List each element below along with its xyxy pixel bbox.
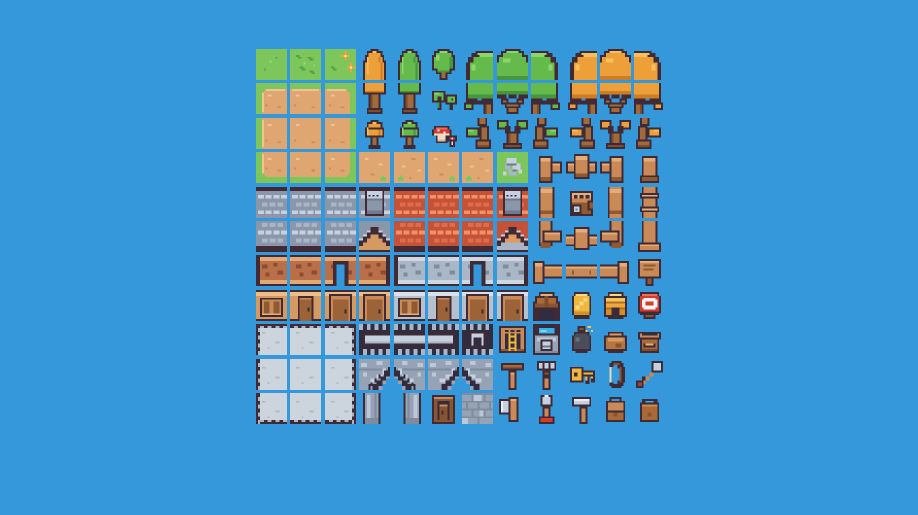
tile-post-top bbox=[634, 152, 665, 183]
tile-wall-gray-right bbox=[497, 255, 528, 286]
tile-fence-bottom-post bbox=[566, 221, 597, 252]
tile-fence-side-left bbox=[531, 187, 562, 218]
license-bar: CC0 1.0 This content is free to use in p… bbox=[0, 445, 918, 515]
tile-bridge-band-right bbox=[428, 324, 459, 355]
tile-window-on-brown bbox=[256, 290, 287, 321]
tile-dirt-tile-b bbox=[394, 152, 425, 183]
tile-sack bbox=[600, 324, 631, 355]
tile-bridge-band-left bbox=[359, 324, 390, 355]
tile-roof-red-bottom bbox=[394, 221, 425, 252]
tile-wall-gray-doorway bbox=[462, 255, 493, 286]
tile-bigtree-orange-root-right bbox=[634, 118, 665, 149]
tile-dirt-bottom-left bbox=[256, 152, 287, 183]
tile-roof-red-top bbox=[462, 187, 493, 218]
tile-bigtree-green-root-mid bbox=[497, 118, 528, 149]
tile-roof-red-bottom bbox=[462, 221, 493, 252]
tile-fence-side-right bbox=[600, 187, 631, 218]
tile-bigtree-green-mid-left bbox=[462, 83, 493, 114]
tile-dirt-tile-a bbox=[428, 152, 459, 183]
tile-target bbox=[634, 290, 665, 321]
tile-wall-brown-doorway bbox=[325, 255, 356, 286]
tile-pine-green-bottom bbox=[394, 83, 425, 114]
tile-crate-chest bbox=[566, 187, 597, 218]
tile-bigtree-orange-mid-right bbox=[634, 83, 665, 114]
tile-bomb bbox=[566, 324, 597, 355]
tile-roof-gray-bottom bbox=[290, 221, 321, 252]
tile-bigtree-orange-root-mid bbox=[600, 118, 631, 149]
tile-dirt-top-left bbox=[256, 83, 287, 114]
tile-roof-gray-top bbox=[290, 187, 321, 218]
tile-ladder-frame bbox=[497, 324, 528, 355]
tile-floor-center bbox=[290, 359, 321, 390]
tile-pillar-right bbox=[394, 393, 425, 424]
tile-bigtree-green-root-right bbox=[531, 118, 562, 149]
tile-dirt-top-right bbox=[325, 83, 356, 114]
tile-bigtree-green-root-left bbox=[462, 118, 493, 149]
tile-door-large-brown bbox=[359, 290, 390, 321]
tile-fence-corner-tr bbox=[600, 152, 631, 183]
tile-key bbox=[566, 359, 597, 390]
tile-dirt-right bbox=[325, 118, 356, 149]
tile-axe bbox=[497, 393, 528, 424]
tile-roof-red-bottom bbox=[428, 221, 459, 252]
tile-floor-bottom bbox=[290, 393, 321, 424]
tile-dirt-top bbox=[290, 83, 321, 114]
tile-dirt-center bbox=[290, 118, 321, 149]
tile-pickaxe bbox=[497, 359, 528, 390]
tile-roof-gray-bottom bbox=[256, 221, 287, 252]
tile-dirt-bottom-right bbox=[325, 152, 356, 183]
tile-bigtree-orange-top-mid bbox=[600, 49, 631, 80]
tile-bigtree-green-top-left bbox=[462, 49, 493, 80]
tile-floor-top-left bbox=[256, 324, 287, 355]
tile-basket bbox=[634, 324, 665, 355]
tile-floor-bottom-right bbox=[325, 393, 356, 424]
tile-arch-deco-left bbox=[359, 359, 390, 390]
tile-grass-sparkle bbox=[325, 49, 356, 80]
tile-roof-gray-bottom bbox=[325, 221, 356, 252]
tile-bigtree-green-mid-right bbox=[531, 83, 562, 114]
tile-bag-closed bbox=[600, 393, 631, 424]
tile-window-on-gray bbox=[394, 290, 425, 321]
tile-wall-brown-right bbox=[359, 255, 390, 286]
tile-wall-brown-left bbox=[256, 255, 287, 286]
tile-post-mid bbox=[634, 187, 665, 218]
tile-chimney-on-gray bbox=[359, 187, 390, 218]
tile-framed-door bbox=[428, 393, 459, 424]
tile-fence-corner-br bbox=[600, 221, 631, 252]
tile-fence-corner-tl bbox=[531, 152, 562, 183]
tile-dirt-bottom bbox=[290, 152, 321, 183]
tile-door-small-brown bbox=[290, 290, 321, 321]
tile-fence-corner-bl bbox=[531, 221, 562, 252]
tile-arch-deco-right bbox=[394, 359, 425, 390]
tile-arrow bbox=[634, 359, 665, 390]
tile-door-small-gray bbox=[428, 290, 459, 321]
tile-roof-red-top bbox=[394, 187, 425, 218]
tile-bigtree-green-mid-mid bbox=[497, 83, 528, 114]
tile-post-bottom bbox=[634, 221, 665, 252]
tile-bigtree-orange-mid-mid bbox=[600, 83, 631, 114]
tile-hfence-mid bbox=[566, 255, 597, 286]
tile-dirt-left bbox=[256, 118, 287, 149]
tile-arch-plain-left bbox=[428, 359, 459, 390]
tile-floor-bottom-left bbox=[256, 393, 287, 424]
tile-pine-green-small bbox=[394, 118, 425, 149]
tile-sign-post bbox=[634, 255, 665, 286]
tile-beehive bbox=[600, 290, 631, 321]
tile-bow bbox=[600, 359, 631, 390]
tile-grass-pebbles bbox=[497, 152, 528, 183]
tile-dirt-tile-a bbox=[359, 152, 390, 183]
tile-coin bbox=[566, 290, 597, 321]
tile-floor-left bbox=[256, 359, 287, 390]
tile-wall-gray-mid bbox=[428, 255, 459, 286]
tile-sapling-curly bbox=[428, 83, 459, 114]
tile-bigtree-orange-top-left bbox=[566, 49, 597, 80]
tile-floor-right bbox=[325, 359, 356, 390]
tile-bigtree-green-top-mid bbox=[497, 49, 528, 80]
tile-pine-orange-small bbox=[359, 118, 390, 149]
tile-floor-top-right bbox=[325, 324, 356, 355]
tile-roof-gray-top bbox=[325, 187, 356, 218]
tile-gable-gray bbox=[359, 221, 390, 252]
tile-brick-wall bbox=[462, 393, 493, 424]
tile-bigtree-orange-root-left bbox=[566, 118, 597, 149]
tile-bridge-window bbox=[462, 324, 493, 355]
asset-pack-preview: CC0 1.0 This content is free to use in p… bbox=[0, 0, 918, 515]
tile-grass-tufts bbox=[290, 49, 321, 80]
tile-shovel bbox=[531, 393, 562, 424]
tile-door-large-brown bbox=[325, 290, 356, 321]
tile-well-bottom bbox=[531, 324, 562, 355]
tile-fence-top-post bbox=[566, 152, 597, 183]
tile-hammer bbox=[566, 393, 597, 424]
tile-arch-plain-right bbox=[462, 359, 493, 390]
tileset-grid bbox=[256, 49, 665, 424]
tile-pine-orange-bottom bbox=[359, 83, 390, 114]
tile-gable-red bbox=[497, 221, 528, 252]
tile-hfence-right bbox=[600, 255, 631, 286]
tile-mushrooms bbox=[428, 118, 459, 149]
tile-wall-gray-left bbox=[394, 255, 425, 286]
tile-well-top bbox=[531, 290, 562, 321]
tile-dirt-tile-b bbox=[462, 152, 493, 183]
tile-pine-green-top bbox=[394, 49, 425, 80]
tile-pine-orange-top bbox=[359, 49, 390, 80]
tile-bigtree-green-top-right bbox=[531, 49, 562, 80]
tile-bigtree-orange-mid-left bbox=[566, 83, 597, 114]
tile-grass-plain bbox=[256, 49, 287, 80]
tile-hfence-left bbox=[531, 255, 562, 286]
tile-wall-brown-mid bbox=[290, 255, 321, 286]
tile-door-large-gray bbox=[497, 290, 528, 321]
tile-door-large-gray bbox=[462, 290, 493, 321]
tile-bigtree-orange-top-right bbox=[634, 49, 665, 80]
tile-roof-red-top bbox=[428, 187, 459, 218]
tile-bag-open bbox=[634, 393, 665, 424]
tile-roof-gray-top bbox=[256, 187, 287, 218]
tile-tree-round bbox=[428, 49, 459, 80]
tile-pillar-left bbox=[359, 393, 390, 424]
tile-floor-top bbox=[290, 324, 321, 355]
tile-chimney-on-red bbox=[497, 187, 528, 218]
tile-pitchfork bbox=[531, 359, 562, 390]
tile-bridge-band-mid bbox=[394, 324, 425, 355]
